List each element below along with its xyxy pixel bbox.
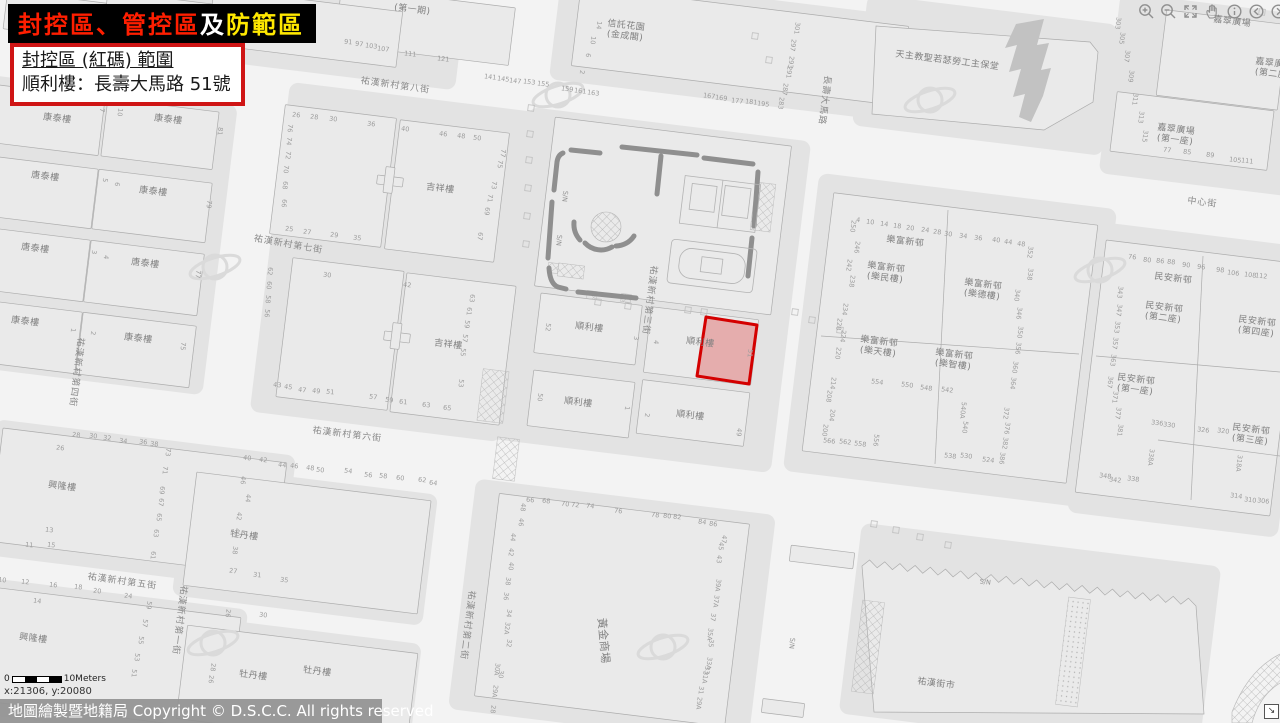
svg-text:57: 57: [461, 334, 470, 343]
svg-text:356: 356: [1013, 342, 1022, 355]
svg-text:381: 381: [1115, 424, 1124, 437]
svg-text:65: 65: [443, 404, 452, 413]
svg-text:153: 153: [523, 77, 536, 86]
svg-text:67: 67: [157, 498, 166, 507]
svg-text:S/N: S/N: [554, 234, 563, 246]
svg-text:524: 524: [982, 455, 995, 464]
svg-text:50: 50: [473, 134, 482, 143]
svg-text:28: 28: [209, 663, 218, 672]
svg-text:86: 86: [1156, 257, 1165, 266]
svg-text:550: 550: [901, 380, 914, 389]
svg-text:51: 51: [326, 388, 335, 397]
svg-text:44: 44: [244, 494, 253, 503]
svg-text:30: 30: [329, 115, 338, 124]
svg-text:81: 81: [216, 127, 225, 136]
svg-text:238: 238: [847, 275, 856, 288]
svg-text:26: 26: [207, 675, 216, 684]
svg-text:303: 303: [1113, 17, 1122, 30]
svg-text:32: 32: [103, 434, 112, 443]
svg-text:314: 314: [1230, 491, 1243, 500]
svg-text:56: 56: [364, 471, 373, 480]
svg-text:48: 48: [519, 503, 528, 512]
svg-text:73: 73: [490, 181, 499, 190]
svg-text:50: 50: [536, 393, 545, 402]
svg-text:68: 68: [542, 497, 551, 506]
previous-view-icon[interactable]: [1247, 2, 1266, 21]
svg-text:37: 37: [709, 613, 718, 622]
svg-text:224: 224: [838, 330, 847, 343]
svg-text:220: 220: [833, 347, 842, 360]
banner-red-text: 封控區、管控區: [18, 11, 200, 39]
svg-text:46: 46: [517, 518, 526, 527]
svg-text:54: 54: [344, 467, 353, 476]
svg-text:40: 40: [243, 454, 252, 463]
svg-text:147: 147: [509, 76, 522, 85]
svg-text:75: 75: [496, 160, 505, 169]
svg-text:163: 163: [587, 88, 600, 97]
svg-text:297: 297: [788, 39, 797, 52]
zoom-out-icon[interactable]: [1159, 2, 1178, 21]
svg-text:10: 10: [116, 108, 125, 117]
svg-text:376: 376: [1002, 422, 1011, 435]
svg-text:364: 364: [1008, 377, 1017, 390]
svg-text:58: 58: [379, 472, 388, 481]
svg-text:34: 34: [505, 609, 514, 618]
svg-text:42: 42: [235, 512, 244, 521]
svg-text:155: 155: [537, 79, 550, 88]
svg-text:43: 43: [273, 381, 282, 390]
svg-text:79: 79: [205, 200, 214, 209]
svg-text:97: 97: [355, 40, 364, 49]
svg-text:326: 326: [1197, 425, 1210, 434]
svg-text:39A: 39A: [713, 578, 723, 592]
svg-text:566: 566: [823, 436, 836, 445]
svg-text:36: 36: [139, 438, 148, 447]
svg-text:161: 161: [574, 86, 587, 95]
svg-text:76: 76: [286, 124, 295, 133]
svg-text:103: 103: [365, 41, 378, 50]
svg-text:315: 315: [1140, 130, 1149, 143]
svg-text:35: 35: [353, 234, 362, 243]
svg-text:70: 70: [282, 165, 291, 174]
svg-text:72: 72: [284, 151, 293, 160]
svg-text:18: 18: [74, 583, 83, 592]
svg-text:S/N: S/N: [787, 637, 796, 649]
svg-text:62: 62: [418, 476, 427, 485]
svg-text:中心街: 中心街: [1187, 194, 1218, 210]
svg-text:24: 24: [124, 592, 133, 601]
scale-distance-label: 10Meters: [64, 674, 106, 684]
svg-text:38: 38: [504, 577, 513, 586]
svg-text:46: 46: [290, 462, 299, 471]
info-icon[interactable]: [1225, 2, 1244, 21]
svg-text:55: 55: [459, 348, 468, 357]
svg-text:71: 71: [486, 194, 495, 203]
svg-text:48: 48: [306, 464, 315, 473]
svg-text:36: 36: [974, 234, 983, 243]
svg-text:538: 538: [944, 451, 957, 460]
svg-text:357: 357: [1110, 337, 1119, 350]
svg-text:80: 80: [1143, 256, 1152, 265]
svg-text:352: 352: [1025, 246, 1034, 259]
title-banner: 封控區、管控區及防範區: [8, 4, 316, 43]
svg-text:63: 63: [152, 529, 161, 538]
svg-text:293: 293: [786, 56, 795, 69]
svg-text:61: 61: [149, 551, 158, 560]
svg-text:338: 338: [1025, 268, 1034, 281]
svg-text:53: 53: [133, 653, 142, 662]
svg-text:77: 77: [499, 149, 508, 158]
svg-text:祐漢新村第六街: 祐漢新村第六街: [312, 424, 383, 444]
svg-text:313: 313: [1136, 111, 1145, 124]
svg-text:121: 121: [437, 54, 450, 63]
svg-text:107: 107: [377, 44, 390, 53]
svg-text:14: 14: [880, 220, 889, 229]
svg-text:14: 14: [33, 597, 42, 606]
svg-text:342: 342: [1109, 475, 1122, 484]
svg-text:53: 53: [457, 379, 466, 388]
svg-text:311: 311: [1130, 93, 1139, 106]
svg-text:363: 363: [1108, 354, 1117, 367]
svg-text:47: 47: [298, 386, 307, 395]
svg-text:28: 28: [72, 431, 81, 440]
scale-zero-label: 0: [4, 674, 10, 684]
svg-text:49: 49: [312, 387, 321, 396]
svg-text:89: 89: [1206, 151, 1215, 160]
svg-text:40: 40: [233, 528, 242, 537]
svg-text:44: 44: [1004, 238, 1013, 247]
svg-text:558: 558: [854, 439, 867, 448]
svg-text:367: 367: [1105, 376, 1114, 389]
svg-text:562: 562: [839, 437, 852, 446]
svg-text:74: 74: [285, 137, 294, 146]
svg-text:55: 55: [137, 636, 146, 645]
svg-text:305: 305: [1117, 32, 1126, 45]
svg-text:530: 530: [960, 451, 973, 460]
svg-text:556: 556: [871, 434, 880, 447]
svg-text:59: 59: [463, 320, 472, 329]
svg-text:66: 66: [280, 199, 289, 208]
svg-text:28: 28: [933, 228, 942, 237]
svg-text:283: 283: [776, 97, 785, 110]
svg-text:60: 60: [396, 474, 405, 483]
svg-text:11: 11: [25, 541, 34, 550]
svg-text:57: 57: [369, 393, 378, 402]
svg-text:31: 31: [253, 571, 262, 580]
svg-text:228: 228: [834, 318, 843, 331]
svg-text:330: 330: [1163, 420, 1176, 429]
svg-text:12: 12: [21, 578, 30, 587]
next-view-icon[interactable]: [1269, 2, 1280, 21]
svg-text:13: 13: [45, 526, 54, 535]
svg-text:35: 35: [280, 576, 289, 585]
svg-text:30: 30: [497, 670, 506, 679]
svg-text:24: 24: [921, 226, 930, 235]
svg-text:73: 73: [164, 448, 173, 457]
svg-text:44: 44: [278, 461, 287, 470]
svg-text:26: 26: [224, 609, 233, 618]
copyright-bar: 地圖繪製暨地籍局 Copyright © D.S.C.C. All rights…: [0, 699, 382, 723]
cursor-coordinates: x:21306, y:20080: [4, 686, 92, 697]
svg-text:32: 32: [505, 639, 514, 648]
svg-text:32A: 32A: [502, 621, 512, 635]
svg-text:29A: 29A: [490, 684, 500, 698]
svg-text:45: 45: [284, 383, 293, 392]
svg-text:61: 61: [399, 398, 408, 407]
svg-text:38: 38: [150, 440, 159, 449]
svg-text:40: 40: [401, 125, 410, 134]
svg-text:69: 69: [158, 486, 167, 495]
svg-text:250: 250: [848, 220, 857, 233]
svg-text:310: 310: [1244, 495, 1257, 504]
svg-text:242: 242: [844, 259, 853, 272]
svg-text:346: 346: [1014, 307, 1023, 320]
svg-text:77: 77: [1163, 146, 1172, 155]
map-canvas[interactable]: 祐漢新村第八街祐漢新村第七街祐漢新村第六街祐漢新村第五街祐漢新村第四街祐漢新村第…: [0, 0, 1280, 723]
svg-text:25: 25: [285, 225, 294, 234]
svg-text:10: 10: [589, 36, 598, 45]
svg-text:340: 340: [1012, 289, 1021, 302]
svg-text:57: 57: [141, 619, 150, 628]
svg-text:214: 214: [828, 377, 837, 390]
svg-text:28: 28: [310, 113, 319, 122]
svg-text:28: 28: [489, 705, 498, 714]
svg-text:38: 38: [231, 546, 240, 555]
svg-text:106: 106: [1227, 268, 1240, 277]
banner-yellow-text: 防範區: [226, 11, 304, 39]
svg-text:169: 169: [715, 93, 728, 102]
svg-text:34: 34: [119, 437, 128, 446]
svg-text:76: 76: [1128, 253, 1137, 262]
svg-text:287: 287: [780, 83, 789, 96]
svg-text:10: 10: [0, 576, 7, 585]
svg-text:91: 91: [344, 38, 353, 47]
svg-text:67: 67: [476, 232, 485, 241]
map-viewport[interactable]: 祐漢新村第八街祐漢新村第七街祐漢新村第六街祐漢新村第五街祐漢新村第四街祐漢新村第…: [0, 0, 1280, 723]
svg-text:31: 31: [697, 686, 706, 695]
pan-hand-icon[interactable]: [1203, 2, 1222, 21]
svg-text:554: 554: [871, 377, 884, 386]
svg-text:45: 45: [717, 542, 726, 551]
svg-text:80: 80: [663, 512, 672, 521]
svg-text:18: 18: [893, 222, 902, 231]
svg-text:51: 51: [130, 669, 139, 678]
svg-text:177: 177: [731, 96, 744, 105]
svg-text:56: 56: [263, 309, 272, 318]
svg-text:141: 141: [484, 72, 497, 81]
svg-text:320: 320: [1217, 426, 1230, 435]
svg-text:40: 40: [992, 236, 1001, 245]
svg-text:36: 36: [502, 592, 511, 601]
scale-bar-segments: [12, 676, 62, 683]
svg-text:84: 84: [698, 518, 707, 527]
svg-text:96: 96: [1197, 263, 1206, 272]
zone-type-label: 封控區 (紅碼) 範圍: [22, 49, 231, 73]
svg-text:64: 64: [429, 479, 438, 488]
svg-text:76: 76: [614, 507, 623, 516]
svg-text:77: 77: [194, 270, 203, 279]
svg-text:347: 347: [1114, 304, 1123, 317]
svg-text:208: 208: [824, 390, 833, 403]
svg-text:69: 69: [483, 207, 492, 216]
svg-text:20: 20: [906, 224, 915, 233]
svg-text:71: 71: [161, 466, 170, 475]
svg-text:59: 59: [385, 396, 394, 405]
svg-text:195: 195: [757, 99, 770, 108]
svg-text:S/N: S/N: [979, 577, 991, 586]
svg-text:14: 14: [595, 21, 604, 30]
svg-text:301: 301: [792, 22, 801, 35]
svg-text:377: 377: [1113, 407, 1122, 420]
svg-text:372: 372: [1001, 407, 1010, 420]
svg-text:350: 350: [1015, 326, 1024, 339]
svg-text:86: 86: [709, 520, 718, 529]
scale-bar: 0 10Meters: [4, 674, 106, 684]
svg-text:48: 48: [457, 132, 466, 141]
banner-white-text: 及: [200, 11, 226, 39]
svg-text:40: 40: [507, 562, 516, 571]
svg-text:61: 61: [465, 307, 474, 316]
svg-text:46: 46: [439, 130, 448, 139]
svg-text:42: 42: [403, 281, 412, 290]
svg-text:S/N: S/N: [560, 190, 569, 202]
svg-text:27: 27: [229, 567, 238, 576]
svg-text:60: 60: [265, 281, 274, 290]
svg-text:62: 62: [266, 267, 275, 276]
svg-text:72: 72: [571, 501, 580, 510]
svg-text:78: 78: [651, 511, 660, 520]
svg-text:542: 542: [941, 385, 954, 394]
svg-text:44: 44: [509, 533, 518, 542]
svg-text:52: 52: [544, 323, 553, 332]
svg-text:51: 51: [746, 349, 755, 358]
fullscreen-icon[interactable]: [1181, 2, 1200, 21]
svg-text:63: 63: [468, 294, 477, 303]
svg-text:37A: 37A: [711, 594, 721, 608]
svg-text:343: 343: [1115, 286, 1124, 299]
svg-text:75: 75: [179, 342, 188, 351]
svg-text:20: 20: [93, 587, 102, 596]
svg-text:90: 90: [1182, 261, 1191, 270]
svg-text:35: 35: [707, 639, 716, 648]
svg-text:30: 30: [944, 230, 953, 239]
resize-handle[interactable]: ↘: [1264, 704, 1279, 719]
svg-text:27: 27: [303, 228, 312, 237]
svg-text:30: 30: [259, 611, 268, 620]
zone-address-label: 順利樓：長壽大馬路 51號: [22, 73, 231, 97]
svg-text:306: 306: [1257, 496, 1270, 505]
svg-text:82: 82: [673, 513, 682, 522]
svg-text:26: 26: [292, 111, 301, 120]
svg-text:65: 65: [155, 513, 164, 522]
svg-text:309: 309: [1126, 70, 1135, 83]
svg-text:234: 234: [840, 303, 849, 316]
svg-text:42: 42: [259, 456, 268, 465]
svg-text:540: 540: [960, 421, 969, 434]
svg-text:353: 353: [1112, 321, 1121, 334]
svg-text:15: 15: [47, 541, 56, 550]
svg-text:112: 112: [1255, 271, 1268, 280]
svg-text:382: 382: [1000, 437, 1009, 450]
svg-text:360: 360: [1010, 361, 1019, 374]
svg-text:88: 88: [1167, 258, 1176, 267]
svg-text:42: 42: [507, 548, 516, 557]
svg-text:58: 58: [264, 295, 273, 304]
svg-text:46: 46: [239, 476, 248, 485]
svg-text:34: 34: [959, 232, 968, 241]
svg-text:48: 48: [1017, 240, 1026, 249]
map-toolbar: [1137, 2, 1280, 21]
svg-text:30: 30: [323, 271, 332, 280]
svg-text:29A: 29A: [694, 696, 704, 710]
svg-text:371: 371: [1110, 391, 1119, 404]
svg-text:16: 16: [49, 581, 58, 590]
svg-text:159: 159: [561, 84, 574, 93]
svg-text:85: 85: [1183, 148, 1192, 157]
svg-text:307: 307: [1122, 50, 1131, 63]
svg-text:200: 200: [820, 424, 829, 437]
zoom-in-icon[interactable]: [1137, 2, 1156, 21]
svg-text:246: 246: [852, 241, 861, 254]
svg-text:74: 74: [586, 502, 595, 511]
svg-text:36: 36: [367, 120, 376, 129]
svg-text:26: 26: [56, 444, 65, 453]
svg-text:59: 59: [145, 601, 154, 610]
svg-text:548: 548: [920, 383, 933, 392]
svg-text:111: 111: [1241, 156, 1254, 165]
svg-text:338: 338: [1127, 474, 1140, 483]
svg-text:386: 386: [997, 452, 1006, 465]
svg-text:31A: 31A: [700, 670, 710, 684]
svg-text:29: 29: [330, 231, 339, 240]
svg-text:50: 50: [316, 466, 325, 475]
svg-text:43: 43: [715, 555, 724, 564]
svg-text:70: 70: [561, 500, 570, 509]
svg-text:63: 63: [422, 401, 431, 410]
svg-text:49: 49: [735, 428, 744, 437]
svg-text:204: 204: [827, 409, 836, 422]
svg-text:98: 98: [1216, 266, 1225, 275]
svg-text:10: 10: [866, 218, 875, 227]
svg-text:111: 111: [404, 49, 417, 58]
svg-text:68: 68: [281, 181, 290, 190]
zone-info-box: 封控區 (紅碼) 範圍 順利樓：長壽大馬路 51號: [10, 43, 245, 106]
svg-text:30: 30: [89, 432, 98, 441]
